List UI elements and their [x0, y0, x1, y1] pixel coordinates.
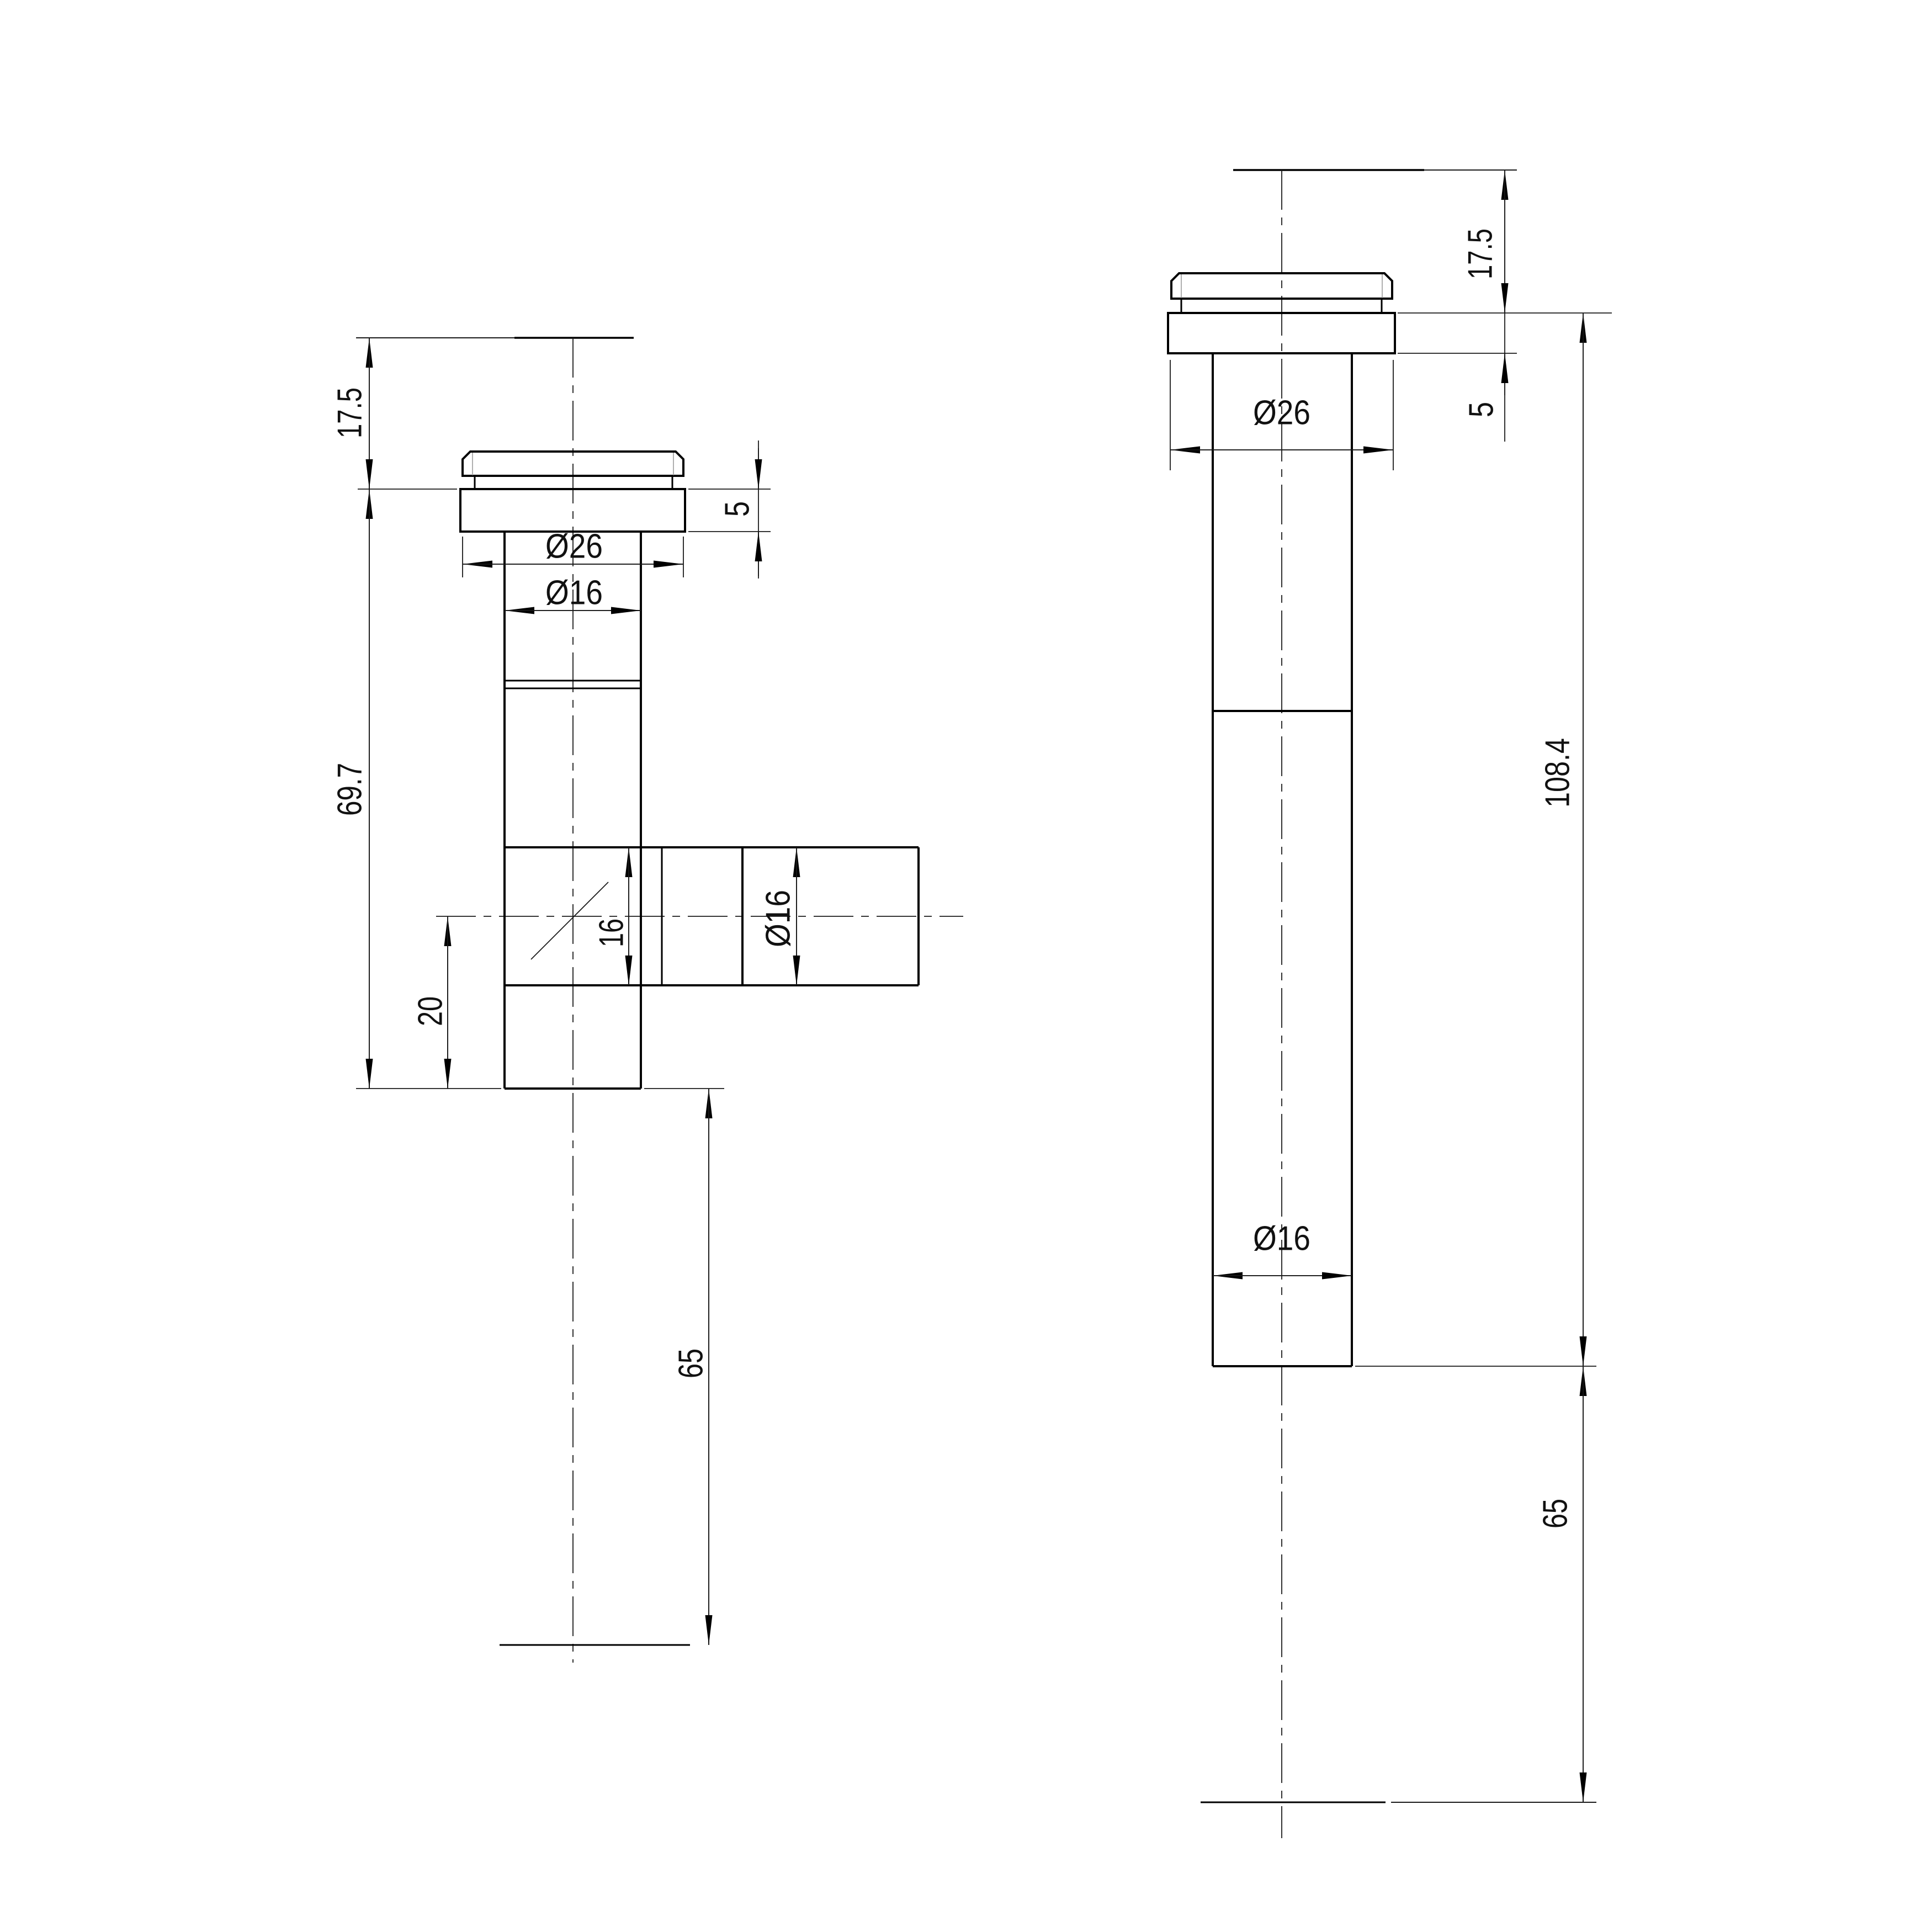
dim-label-front-branch-diameter: Ø16 [760, 890, 798, 947]
dim-label-front-flange-diameter: Ø26 [545, 528, 603, 566]
dim-label-side-tube-diameter: Ø16 [1253, 1220, 1310, 1258]
dim-front-cap-height: 17.5 [331, 338, 370, 489]
drawing-sheet: 17.5 69.7 5 Ø26 Ø16 [0, 0, 1932, 1932]
dim-front-branch-to-end: 20 [412, 916, 450, 1089]
dim-side-cap-height: 17.5 [1462, 170, 1505, 313]
dim-side-flange-height: 5 [1463, 313, 1505, 442]
dim-label-front-tail-extension: 65 [672, 1349, 710, 1378]
front-view: 17.5 69.7 5 Ø26 Ø16 [331, 338, 964, 1663]
dim-side-overall-length: 108.4 [1539, 313, 1584, 1366]
dim-label-front-cap-height: 17.5 [331, 388, 369, 438]
side-view: 17.5 5 Ø26 108.4 Ø16 [1168, 170, 1612, 1838]
dim-front-body-length: 69.7 [331, 489, 370, 1089]
dim-label-front-body-length: 69.7 [331, 763, 369, 816]
dim-label-front-tube-diameter: Ø16 [545, 574, 603, 612]
dim-label-side-tail-extension: 65 [1537, 1499, 1575, 1528]
dim-label-side-flange-height: 5 [1463, 402, 1501, 417]
dim-label-front-branch-bore: 16 [593, 919, 631, 947]
dim-label-side-overall-length: 108.4 [1539, 738, 1577, 808]
dim-front-flange-diameter: Ø26 [463, 528, 683, 566]
dim-label-front-branch-to-end: 20 [412, 996, 450, 1026]
technical-drawing: 17.5 69.7 5 Ø26 Ø16 [0, 0, 1932, 1932]
dim-front-tail-extension: 65 [672, 1089, 710, 1645]
dim-front-tube-diameter: Ø16 [505, 574, 641, 612]
dim-label-side-cap-height: 17.5 [1462, 229, 1500, 279]
dim-front-flange-height: 5 [719, 440, 759, 578]
dim-front-branch-diameter: Ø16 [760, 847, 798, 985]
dim-side-tail-extension: 65 [1537, 1366, 1584, 1802]
dim-label-front-flange-height: 5 [719, 501, 757, 517]
front-neck-outline [475, 476, 672, 489]
dim-side-tube-diameter: Ø16 [1213, 1220, 1352, 1276]
dim-label-side-flange-diameter: Ø26 [1253, 394, 1310, 432]
